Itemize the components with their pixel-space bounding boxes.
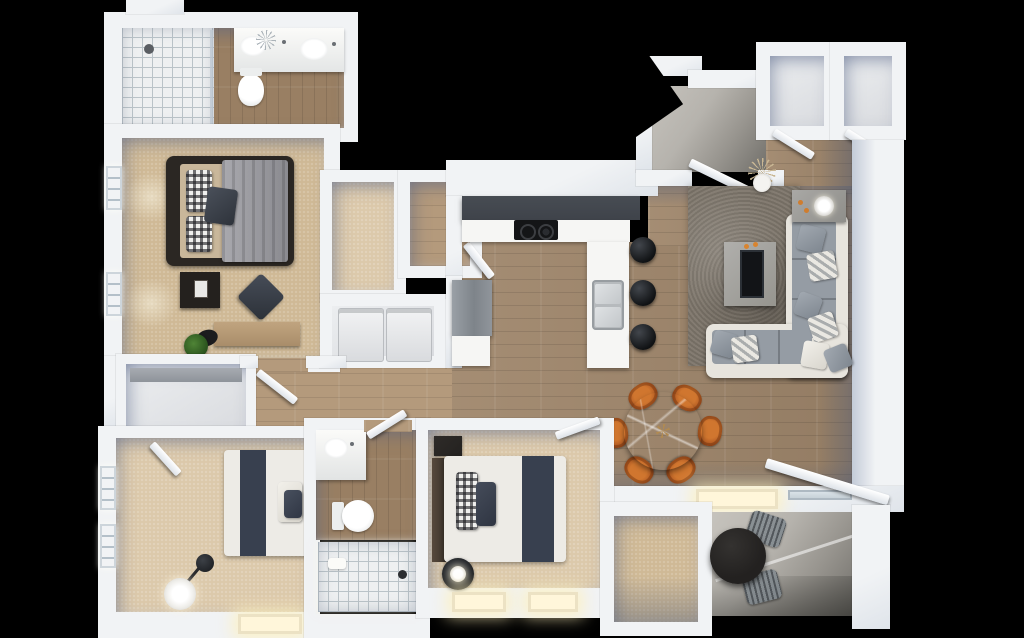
coat-closet-2	[830, 42, 906, 140]
storage-closet	[600, 502, 712, 636]
toilet	[238, 74, 264, 106]
base-cabinet	[452, 336, 490, 366]
master-bedroom	[104, 124, 340, 372]
coat-closet-1-floor	[770, 56, 824, 126]
candle-3	[798, 200, 803, 205]
bathroom-2	[304, 418, 430, 638]
bedroom-3-navy-runner	[240, 450, 266, 556]
plant-vase	[753, 174, 771, 192]
burner-2	[538, 224, 554, 240]
refrigerator	[452, 280, 492, 336]
sink-faucet	[620, 302, 625, 307]
arc-lamp-shade	[164, 578, 196, 610]
storage-closet-shadow	[614, 576, 698, 622]
bedroom-2-navy-pillow	[476, 482, 496, 526]
bathroom-exterior-wall-bump	[126, 0, 184, 14]
desk	[214, 322, 300, 346]
photo-frame	[194, 280, 208, 298]
balcony-right-wall	[852, 505, 890, 629]
throw-pillow-2	[806, 250, 838, 282]
candle-2	[753, 242, 758, 247]
tiled-shower	[122, 28, 214, 128]
dining-centerpiece	[656, 424, 670, 438]
candle-1	[744, 244, 749, 249]
bar-stool-2	[630, 280, 656, 306]
hall-closet-shelf	[130, 368, 242, 382]
bedroom-3-window-1	[100, 466, 116, 510]
bathroom-2-faucet	[350, 442, 354, 446]
bedside-lamp	[450, 566, 466, 582]
faucet-2	[332, 42, 336, 46]
shower-head	[144, 44, 154, 54]
master-bathroom	[104, 12, 358, 142]
faucet-1	[282, 40, 286, 44]
bedroom-3-navy-pillow	[284, 490, 302, 518]
burner-1	[520, 224, 536, 240]
hall-wall-seg-2	[306, 356, 346, 368]
throw-pillow-8	[730, 334, 759, 363]
right-outer-wall	[852, 140, 904, 492]
upper-cabinets-dark	[462, 196, 640, 220]
bedroom-2-navy-runner	[522, 456, 554, 562]
bedroom-2-gingham-pillow	[456, 472, 478, 530]
table-lamp	[814, 196, 834, 216]
bedroom-3	[98, 426, 320, 638]
shower-drain	[398, 570, 407, 579]
master-window-2	[106, 272, 122, 316]
toilet-2	[342, 500, 374, 532]
bedroom-2	[416, 418, 614, 618]
balcony-cafe-table	[710, 528, 766, 584]
entry-threshold-wall-left	[636, 170, 692, 186]
decor-sprig	[256, 30, 276, 50]
walk-in-closet-floor	[332, 182, 394, 290]
hall-wall-seg-1	[240, 356, 258, 368]
sink-basin-1	[595, 284, 621, 304]
sink-basin-2	[595, 307, 621, 327]
window-light-pool-2	[124, 278, 178, 328]
kitchen-top-wall	[446, 160, 658, 196]
master-window-1	[106, 166, 122, 210]
arc-lamp-head	[196, 554, 214, 572]
master-bedroom-door-threshold	[256, 358, 308, 372]
dryer	[386, 308, 432, 362]
walk-in-closet	[320, 170, 406, 302]
bar-stool-3	[630, 324, 656, 350]
vanity-sink-2	[300, 38, 328, 60]
bedroom-3-window-2	[100, 524, 116, 568]
coat-closet-2-floor	[844, 56, 892, 126]
candle-4	[804, 208, 809, 213]
washer	[338, 308, 384, 362]
coat-closet-1	[756, 42, 838, 140]
tv	[740, 250, 764, 298]
shower-glass-panel	[210, 30, 213, 126]
bedroom-2-dresser	[434, 436, 462, 456]
bathroom-2-sink	[324, 438, 348, 458]
toilet-tank	[240, 68, 262, 76]
bedroom-2-lit-window-1	[452, 592, 506, 612]
floorplan-canvas	[0, 0, 1024, 638]
bath-pillow	[328, 558, 346, 569]
sofa-seam-4	[778, 330, 780, 364]
bar-stool-1	[630, 237, 656, 263]
bedroom-3-lit-window	[238, 614, 302, 634]
bedroom-2-lit-window-2	[528, 592, 578, 612]
dark-pillow	[204, 186, 239, 226]
